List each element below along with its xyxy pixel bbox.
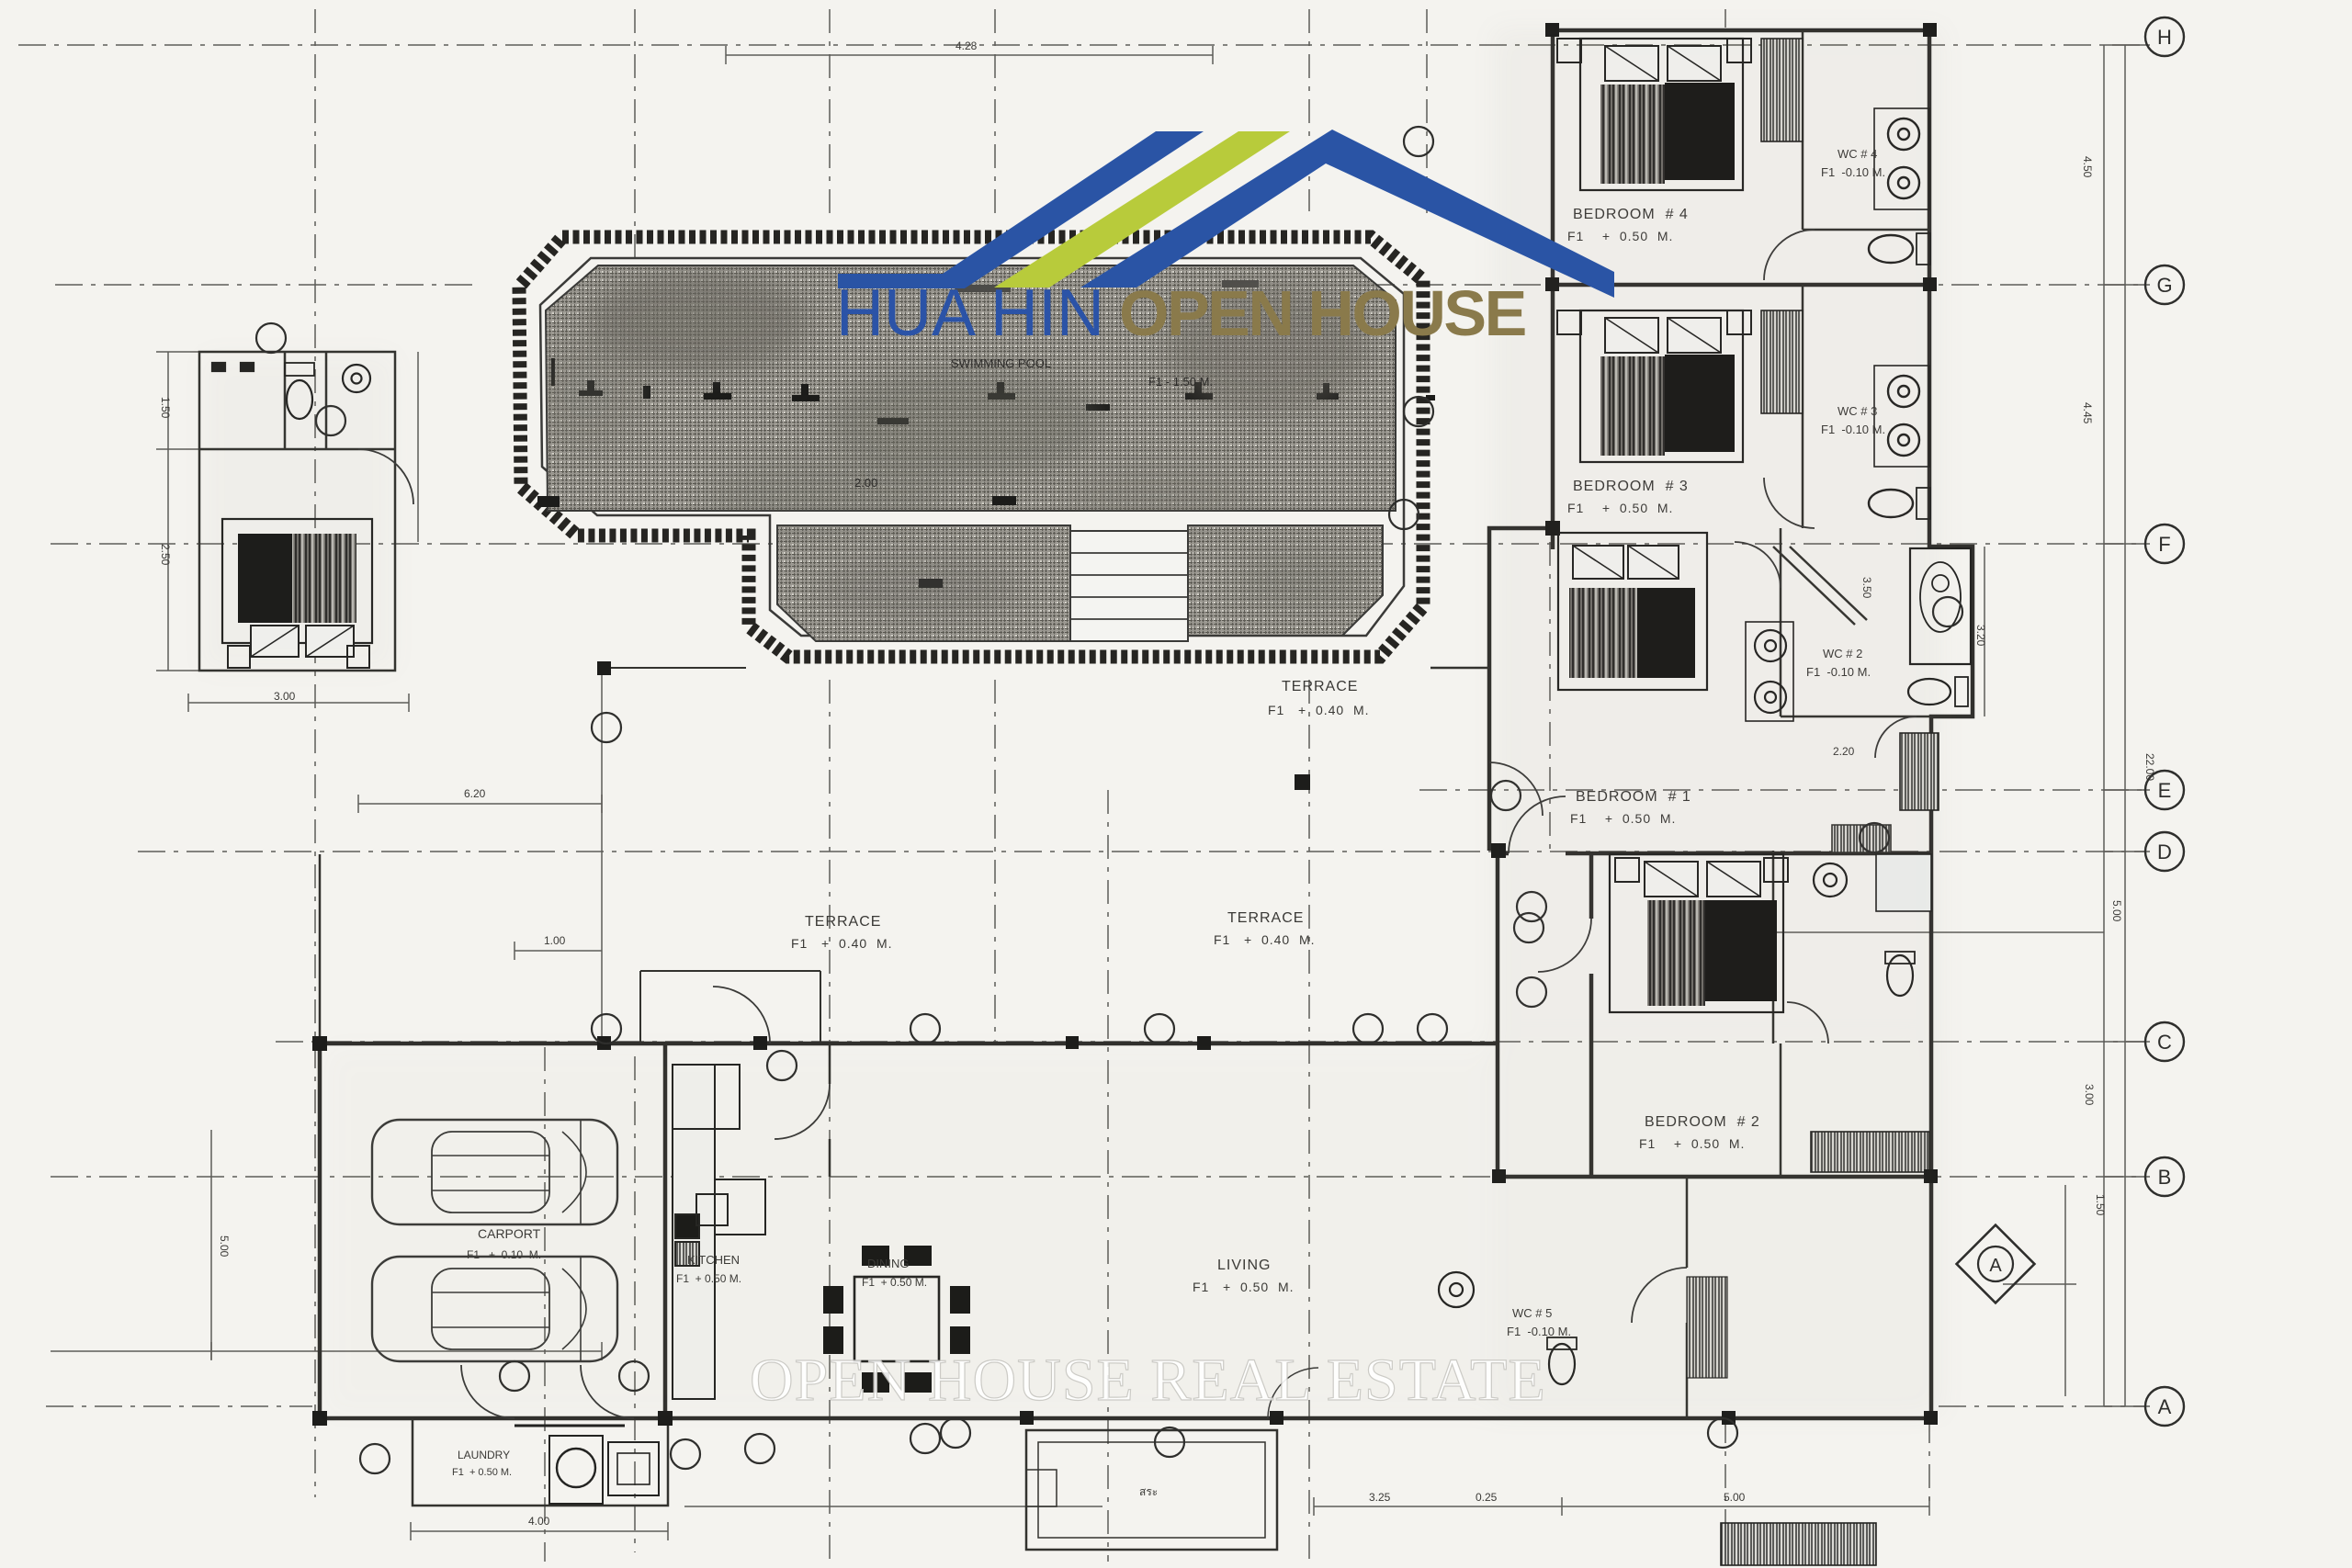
svg-text:F: F: [2158, 533, 2170, 556]
svg-text:6.20: 6.20: [464, 787, 486, 800]
svg-text:E: E: [2158, 779, 2172, 802]
svg-text:C: C: [2157, 1031, 2172, 1054]
svg-text:1.50: 1.50: [2094, 1194, 2107, 1216]
svg-text:3.25: 3.25: [1369, 1491, 1391, 1504]
svg-text:สระ: สระ: [1139, 1485, 1158, 1498]
svg-text:F1 + 0.40 M.: F1 + 0.40 M.: [791, 936, 893, 951]
svg-text:OPEN HOUSE: OPEN HOUSE: [1119, 277, 1525, 349]
svg-text:LAUNDRY: LAUNDRY: [458, 1449, 510, 1461]
svg-text:3.00: 3.00: [274, 690, 296, 703]
svg-text:A: A: [2158, 1395, 2172, 1418]
svg-text:F1 + 0.50 M.: F1 + 0.50 M.: [452, 1467, 512, 1478]
svg-text:SWIMMING POOL: SWIMMING POOL: [951, 356, 1051, 370]
svg-text:4.50: 4.50: [2081, 156, 2094, 178]
svg-text:5.00: 5.00: [1724, 1491, 1746, 1504]
svg-text:3.20: 3.20: [1974, 625, 1987, 647]
svg-text:4.00: 4.00: [528, 1515, 550, 1528]
svg-text:TERRACE: TERRACE: [1282, 679, 1358, 694]
svg-text:F1 + 0.40 M.: F1 + 0.40 M.: [1268, 703, 1370, 717]
svg-text:4.28: 4.28: [955, 39, 978, 52]
svg-text:1.00: 1.00: [544, 934, 566, 947]
svg-text:H: H: [2157, 26, 2172, 49]
svg-text:3.00: 3.00: [2083, 1084, 2096, 1106]
svg-text:A: A: [1989, 1256, 2002, 1276]
svg-text:0.25: 0.25: [1476, 1491, 1498, 1504]
svg-text:G: G: [2156, 274, 2172, 297]
svg-text:4.45: 4.45: [2081, 402, 2094, 424]
svg-text:F1 + 0.40 M.: F1 + 0.40 M.: [1214, 932, 1316, 947]
svg-text:2.50: 2.50: [159, 544, 172, 566]
svg-text:F1 - 1.50 M.: F1 - 1.50 M.: [1148, 375, 1213, 389]
svg-text:5.00: 5.00: [2110, 900, 2123, 922]
svg-text:TERRACE: TERRACE: [1227, 910, 1304, 926]
svg-text:OPEN HOUSE REAL ESTATE: OPEN HOUSE REAL ESTATE: [750, 1347, 1546, 1414]
svg-text:D: D: [2157, 840, 2172, 863]
svg-text:5.00: 5.00: [218, 1235, 231, 1258]
svg-text:1.50: 1.50: [159, 397, 172, 419]
svg-text:B: B: [2158, 1166, 2172, 1189]
svg-text:TERRACE: TERRACE: [805, 914, 881, 930]
svg-text:HUA HIN: HUA HIN: [836, 276, 1104, 350]
svg-text:2.00: 2.00: [854, 476, 877, 490]
